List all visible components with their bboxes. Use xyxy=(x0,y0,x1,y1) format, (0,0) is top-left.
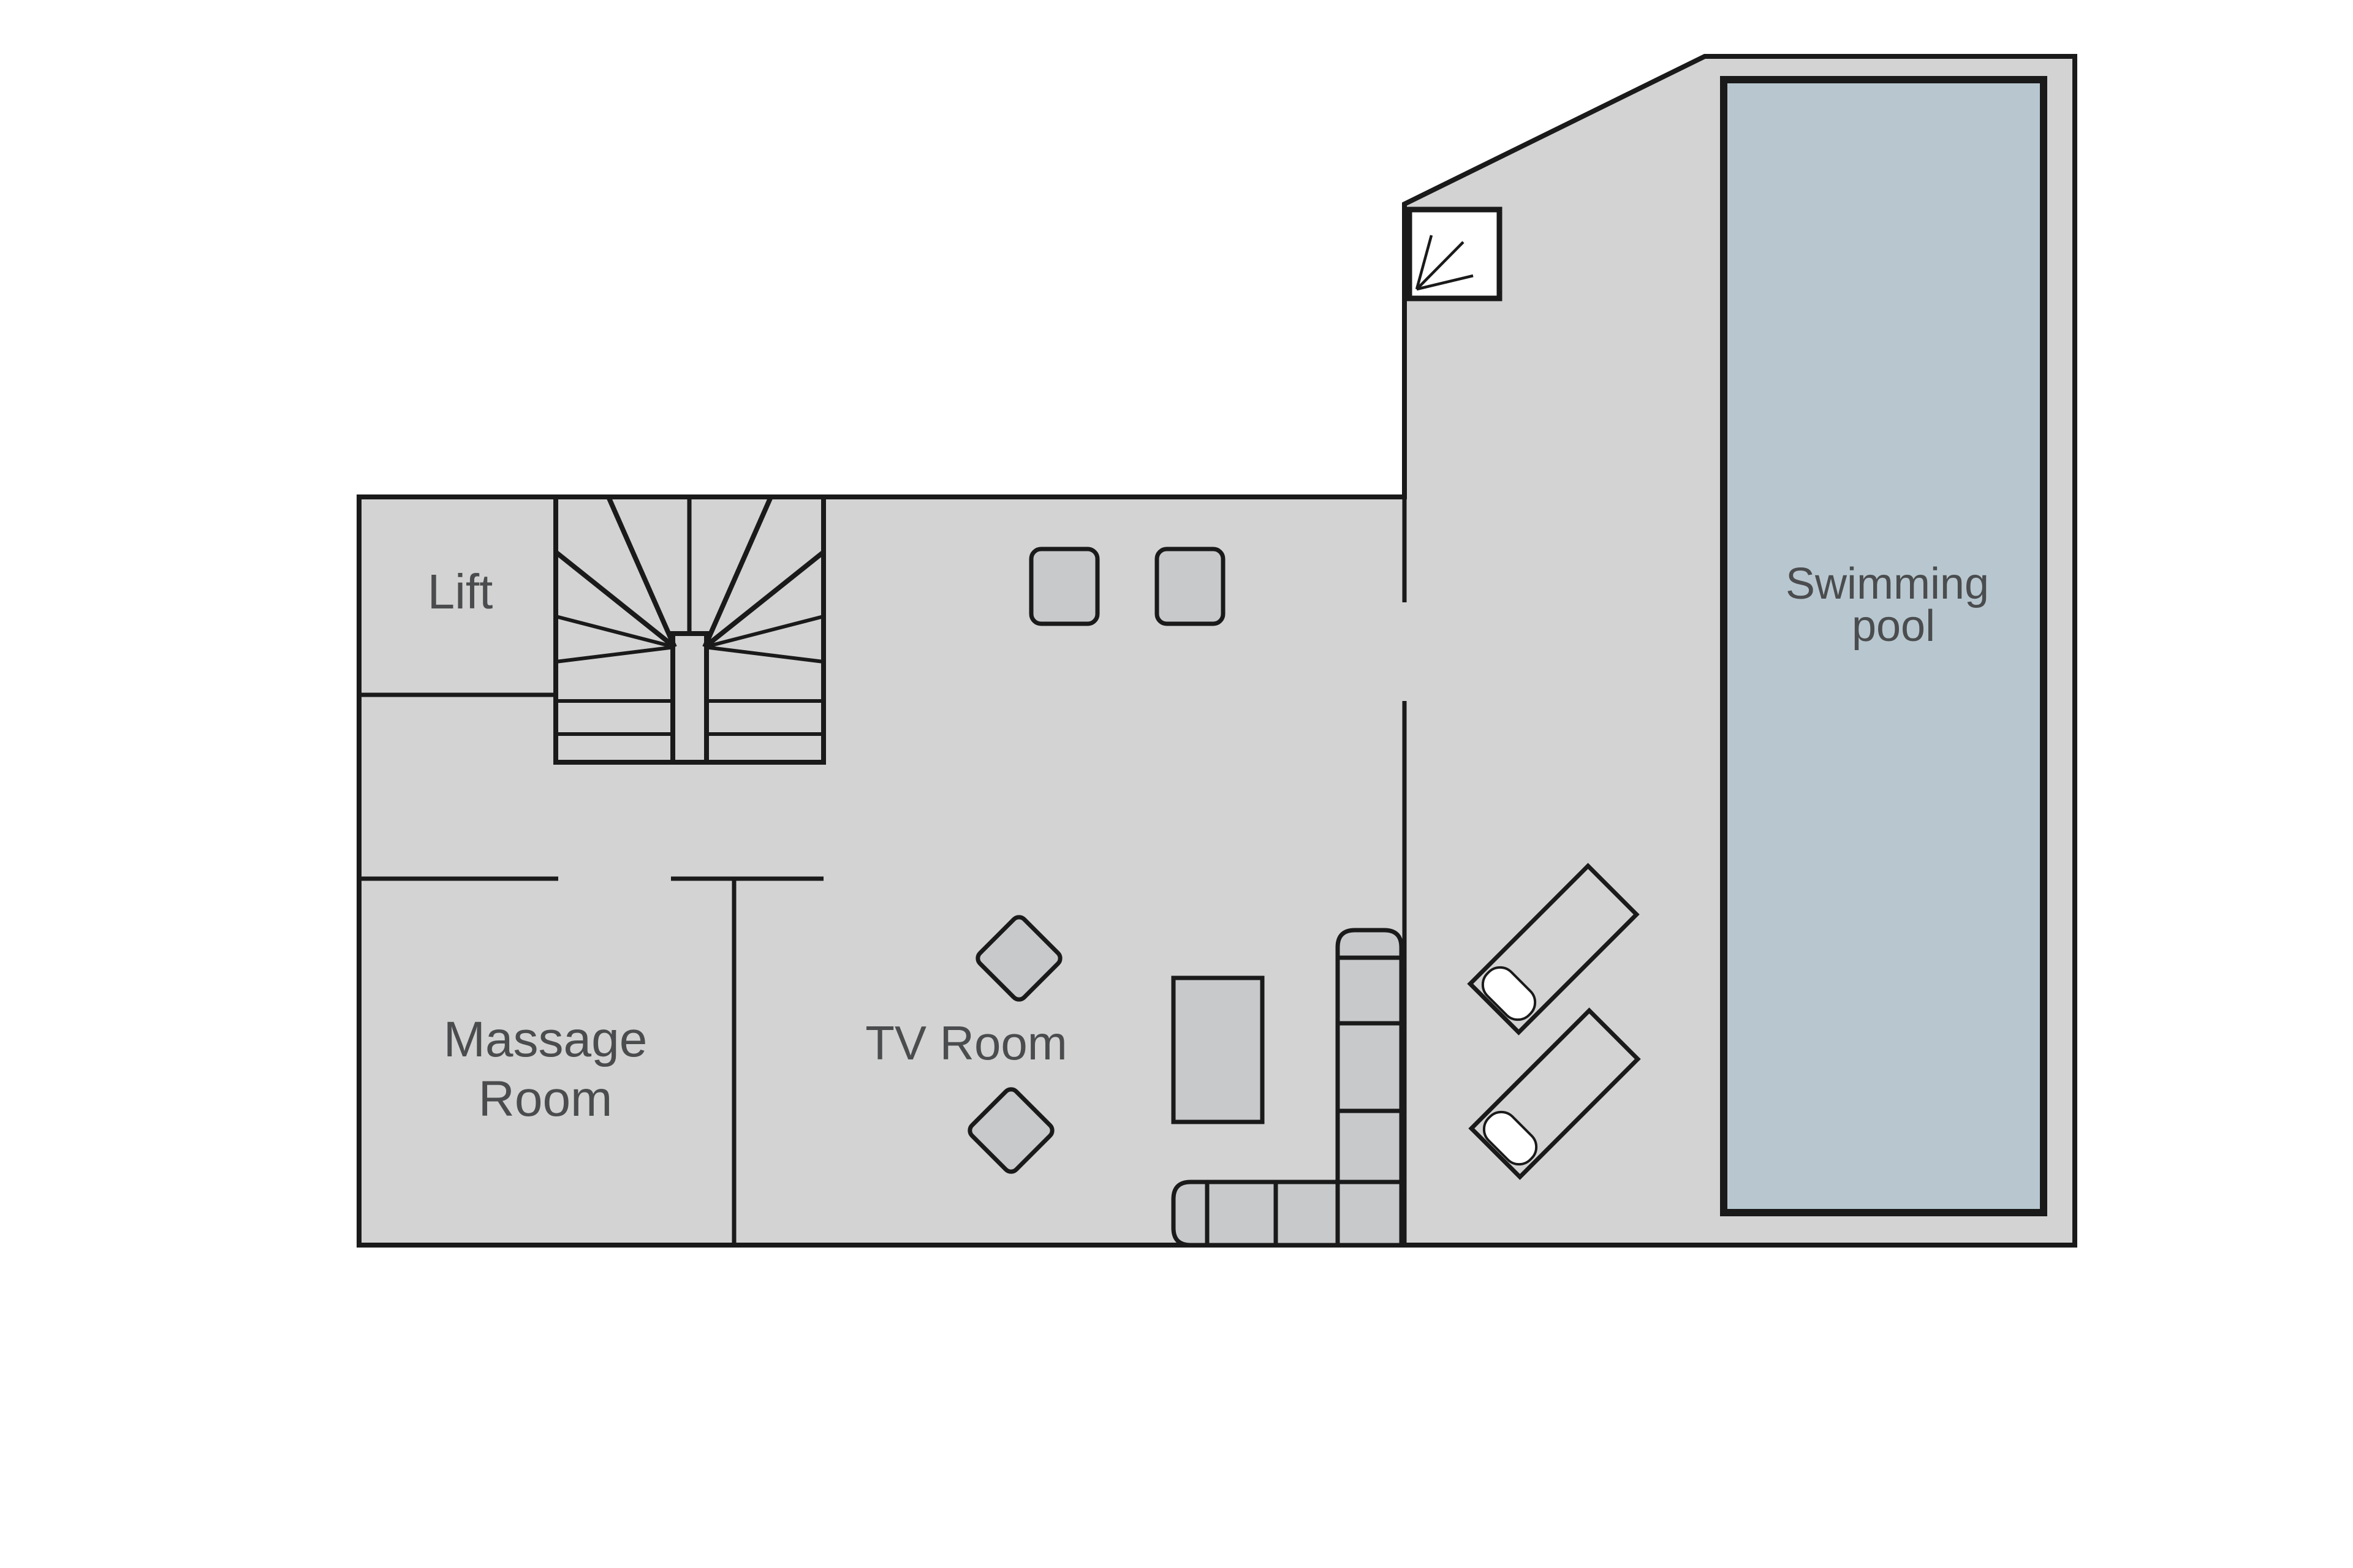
svg-text:Room: Room xyxy=(479,1071,613,1127)
svg-text:Massage: Massage xyxy=(444,1012,648,1067)
svg-text:pool: pool xyxy=(1852,602,1935,651)
svg-text:Swimming: Swimming xyxy=(1786,559,1989,608)
svg-text:Lift: Lift xyxy=(428,564,493,619)
svg-text:TV Room: TV Room xyxy=(865,1016,1067,1070)
